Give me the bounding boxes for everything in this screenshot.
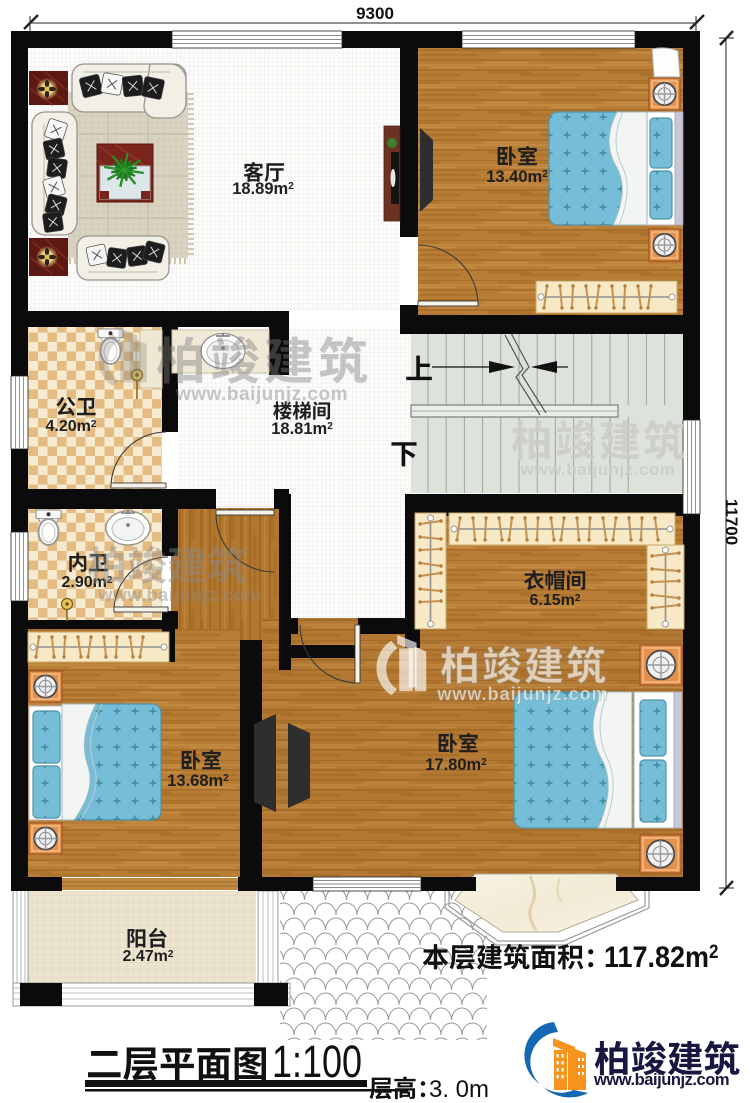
svg-text:www.baijunjz.com: www.baijunjz.com <box>436 684 608 704</box>
svg-text:3. 0m: 3. 0m <box>429 1076 489 1103</box>
svg-text:18.89m2: 18.89m2 <box>232 180 294 198</box>
svg-text:6.15m2: 6.15m2 <box>530 592 581 609</box>
svg-text:2.47m2: 2.47m2 <box>123 948 174 965</box>
svg-text:11700: 11700 <box>722 499 741 545</box>
svg-text:117.82m2: 117.82m2 <box>604 941 719 975</box>
svg-text:4.20m2: 4.20m2 <box>46 418 97 435</box>
svg-text:www.baijunjz.com: www.baijunjz.com <box>175 384 348 405</box>
svg-text:17.80m2: 17.80m2 <box>425 756 487 774</box>
svg-text:18.81m2: 18.81m2 <box>271 420 333 438</box>
svg-text:1:100: 1:100 <box>272 1036 362 1087</box>
svg-text:www.baijunjz.com: www.baijunjz.com <box>520 460 676 479</box>
svg-text:13.40m2: 13.40m2 <box>486 168 548 186</box>
svg-text:9300: 9300 <box>356 4 394 23</box>
svg-text:www.baijunjz.com: www.baijunjz.com <box>97 585 261 605</box>
svg-text:13.68m2: 13.68m2 <box>167 772 229 790</box>
svg-text:www.baijunjz.com: www.baijunjz.com <box>593 1071 730 1089</box>
